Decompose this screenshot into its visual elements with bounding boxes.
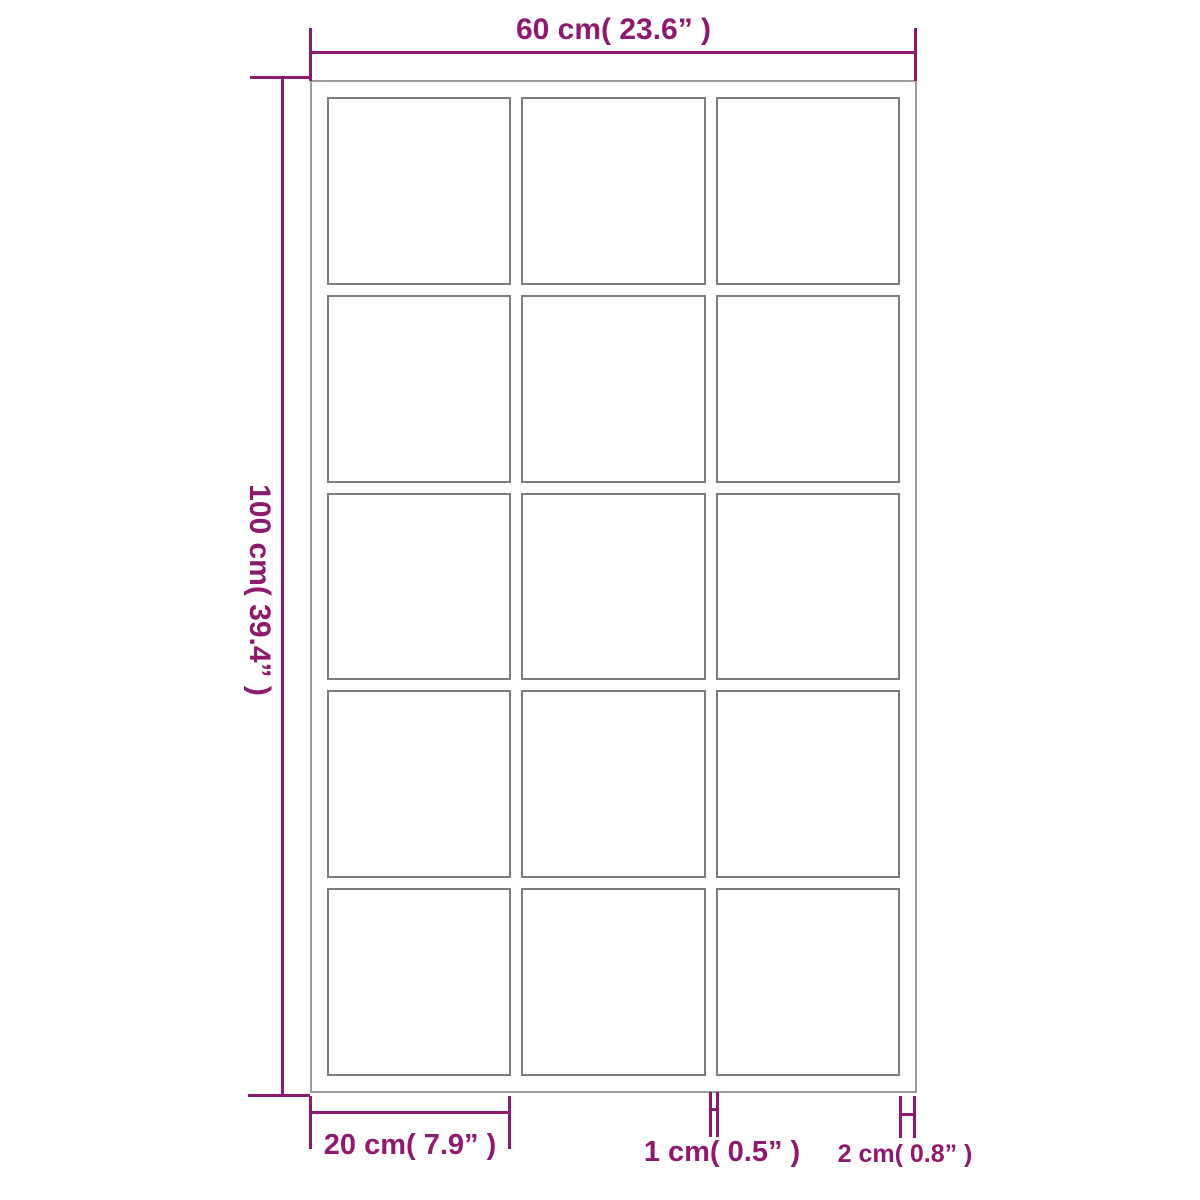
pane-grid xyxy=(327,97,900,1076)
glass-pane xyxy=(716,690,900,878)
frame-depth-marker-tick-left xyxy=(899,1096,902,1138)
glass-pane xyxy=(716,295,900,483)
glass-pane xyxy=(521,97,705,285)
glass-pane xyxy=(327,493,511,681)
glass-pane xyxy=(327,97,511,285)
glass-pane xyxy=(327,295,511,483)
height-dimension-label: 100 cm( 39.4” ) xyxy=(242,470,276,710)
width-dimension-label: 60 cm( 23.6” ) xyxy=(310,13,917,46)
frame-depth-marker-tick-right xyxy=(913,1096,916,1138)
width-dimension-line xyxy=(310,51,917,54)
glass-pane xyxy=(327,888,511,1076)
bar-width-marker-tick-right xyxy=(716,1092,719,1137)
frame-depth-dimension-label: 2 cm( 0.8” ) xyxy=(805,1141,1005,1169)
glass-pane xyxy=(521,295,705,483)
bar-width-marker-tick-left xyxy=(709,1092,712,1137)
glass-pane xyxy=(716,97,900,285)
pane-width-dimension-line xyxy=(310,1111,511,1114)
glass-pane xyxy=(716,493,900,681)
glass-pane xyxy=(521,493,705,681)
bar-width-dimension-label: 1 cm( 0.5” ) xyxy=(622,1137,822,1169)
height-dimension-tick-top xyxy=(250,76,311,79)
frame-depth-marker-crossbar xyxy=(899,1113,916,1116)
glass-pane xyxy=(327,690,511,878)
product-frame xyxy=(310,80,917,1093)
glass-pane xyxy=(716,888,900,1076)
glass-pane xyxy=(521,690,705,878)
height-dimension-tick-bottom xyxy=(248,1094,310,1097)
height-dimension-line xyxy=(281,77,284,1097)
glass-pane xyxy=(521,888,705,1076)
pane-width-dimension-label: 20 cm( 7.9” ) xyxy=(303,1130,517,1162)
bar-width-marker-crossbar xyxy=(709,1108,719,1111)
dimension-diagram: 60 cm( 23.6” ) 100 cm( 39.4” ) 20 cm( 7.… xyxy=(0,0,1200,1200)
